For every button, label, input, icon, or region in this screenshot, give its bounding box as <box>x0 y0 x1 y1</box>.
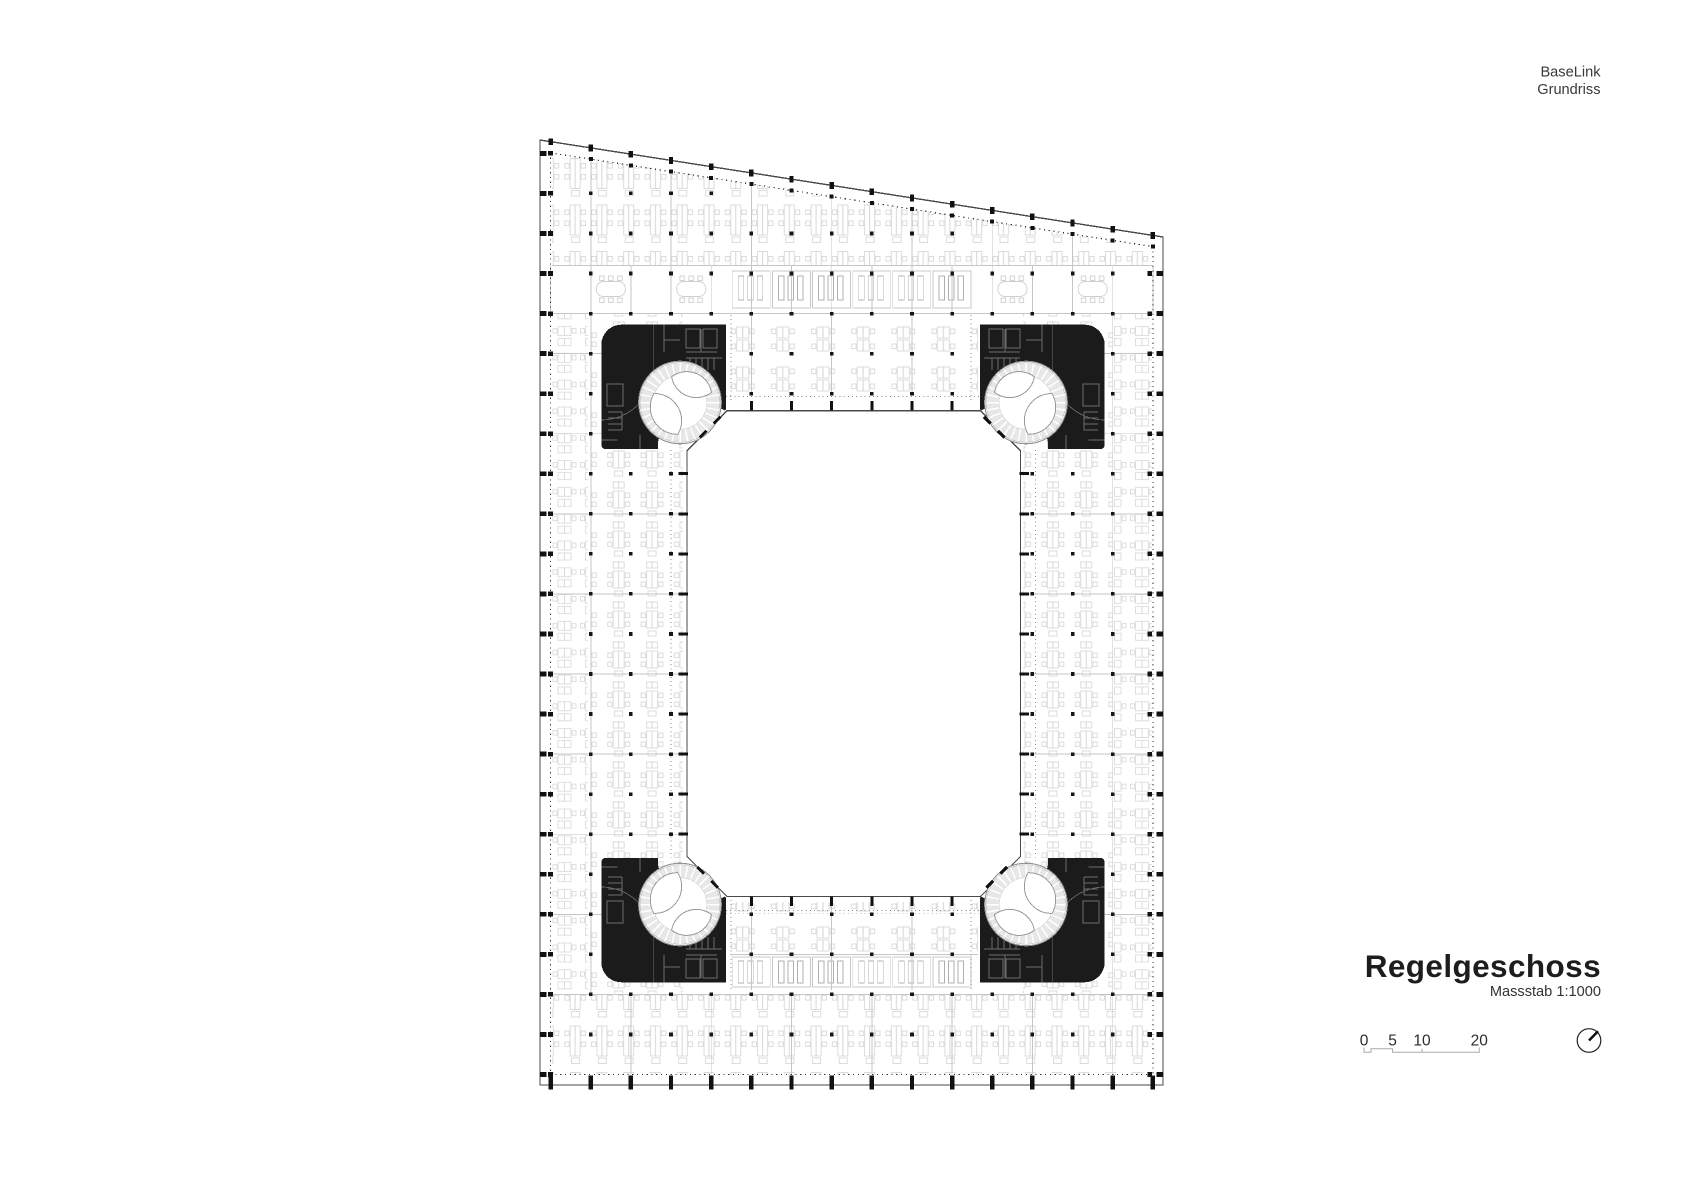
svg-text:10: 10 <box>1413 1033 1431 1050</box>
svg-text:Massstab 1:1000: Massstab 1:1000 <box>1490 984 1601 1000</box>
svg-text:20: 20 <box>1471 1033 1489 1050</box>
svg-text:BaseLink: BaseLink <box>1540 65 1601 81</box>
svg-text:Regelgeschoss: Regelgeschoss <box>1365 948 1601 984</box>
svg-text:0: 0 <box>1360 1033 1369 1050</box>
svg-text:5: 5 <box>1388 1033 1397 1050</box>
svg-text:Grundriss: Grundriss <box>1537 82 1600 98</box>
